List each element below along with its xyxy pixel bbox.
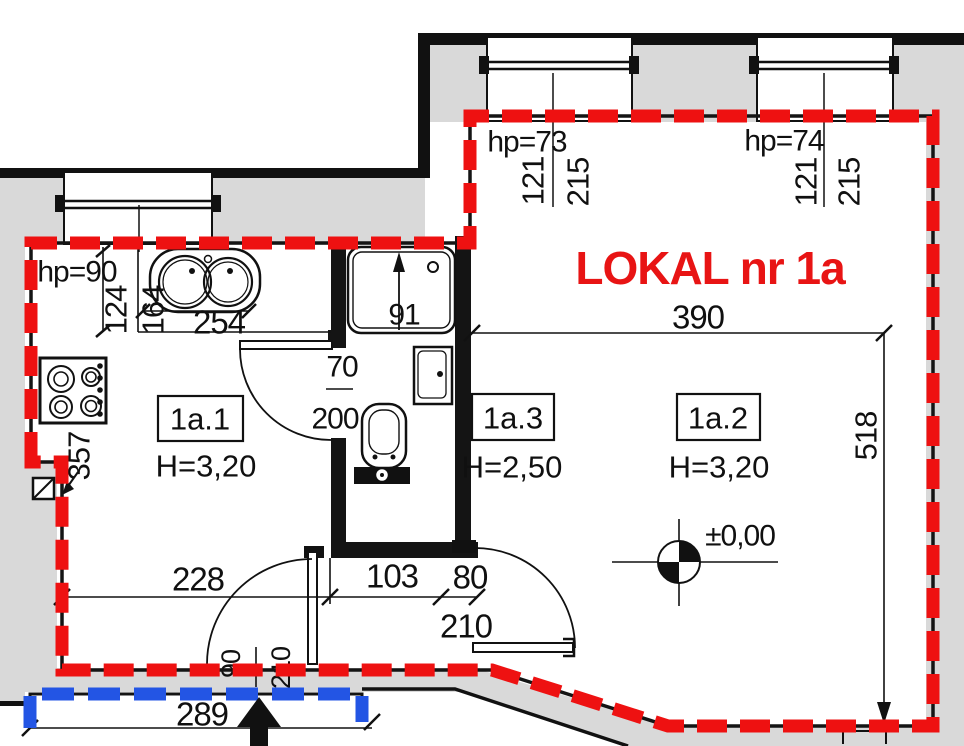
bathroom-door-height: 200	[311, 403, 358, 436]
window-tl-height: 215	[561, 158, 596, 207]
counter-length-dim: 254	[193, 304, 246, 341]
toilet	[354, 404, 410, 484]
kitchen-left-dim: 357	[62, 432, 97, 481]
room-depth-dim: 518	[849, 412, 884, 461]
room2-door-width: 80	[453, 559, 488, 596]
room3-id: 1a.3	[483, 401, 543, 436]
window-tr-height: 215	[832, 158, 867, 207]
level-label: ±0,00	[705, 520, 775, 553]
window-top-left	[487, 37, 632, 121]
kitchen-window-parapet: hp=90	[37, 256, 117, 289]
room2-door-height: 210	[440, 608, 493, 645]
bathroom-door-width: 70	[326, 351, 358, 384]
window-tr-width: 121	[789, 158, 824, 207]
premises-title: LOKAL nr 1a	[575, 242, 846, 294]
room-width-dim: 390	[672, 299, 725, 336]
window-tr-parapet: hp=74	[744, 125, 824, 158]
room2-id: 1a.2	[688, 401, 748, 436]
kitchen-window-width: 124	[99, 285, 134, 334]
washbasin	[414, 347, 452, 404]
floor-plan-drawing: 90 210 LOKAL nr 1a hp=90 124 164 254 357…	[0, 0, 964, 746]
entrance-arrow	[237, 697, 281, 746]
room3-height: H=2,50	[462, 450, 563, 485]
room2-height: H=3,20	[669, 450, 770, 485]
room1-id: 1a.1	[170, 402, 230, 437]
floor-plan: 90 210 LOKAL nr 1a hp=90 124 164 254 357…	[0, 0, 964, 746]
stove	[40, 358, 106, 423]
window-tl-width: 121	[516, 157, 551, 206]
window-top-right	[757, 37, 893, 121]
meter-box	[33, 478, 54, 499]
room1-height: H=3,20	[156, 449, 257, 484]
door-entrance	[207, 546, 324, 664]
bottom-dim-b: 103	[366, 558, 418, 595]
counter-depth-dim: 164	[136, 285, 171, 334]
bottom-dim-a: 228	[172, 561, 224, 598]
window-tl-parapet: hp=73	[487, 126, 567, 159]
wall-band-left-upper	[0, 245, 25, 465]
doors	[207, 341, 575, 664]
entrance-span-dim: 289	[176, 696, 228, 733]
shower-width-dim: 91	[388, 299, 420, 332]
